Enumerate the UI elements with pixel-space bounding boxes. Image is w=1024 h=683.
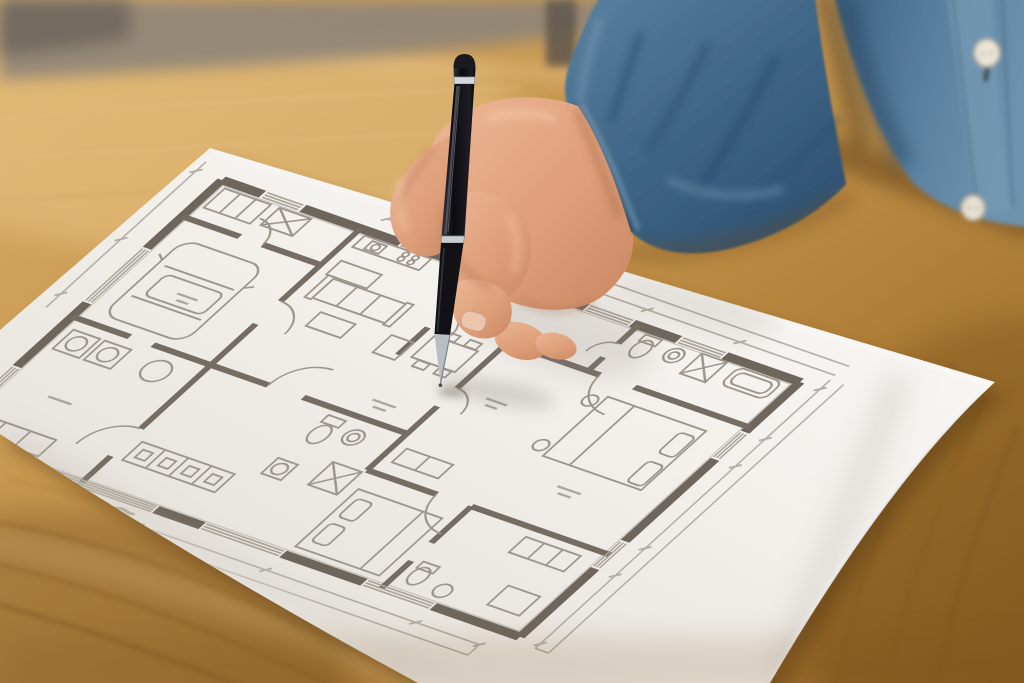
pen-cap-ring xyxy=(454,77,475,84)
photo-architect-desk: Photograph of a person in a blue denim s… xyxy=(0,0,1024,683)
shirt-button-bottom xyxy=(962,196,985,221)
doorframe-band xyxy=(546,0,576,66)
pen-cap xyxy=(454,68,476,77)
pen-tip-ball xyxy=(439,383,443,387)
scene-canvas xyxy=(0,0,1024,683)
foreground-blur-band xyxy=(0,636,1024,683)
pen-center-band xyxy=(441,236,465,243)
